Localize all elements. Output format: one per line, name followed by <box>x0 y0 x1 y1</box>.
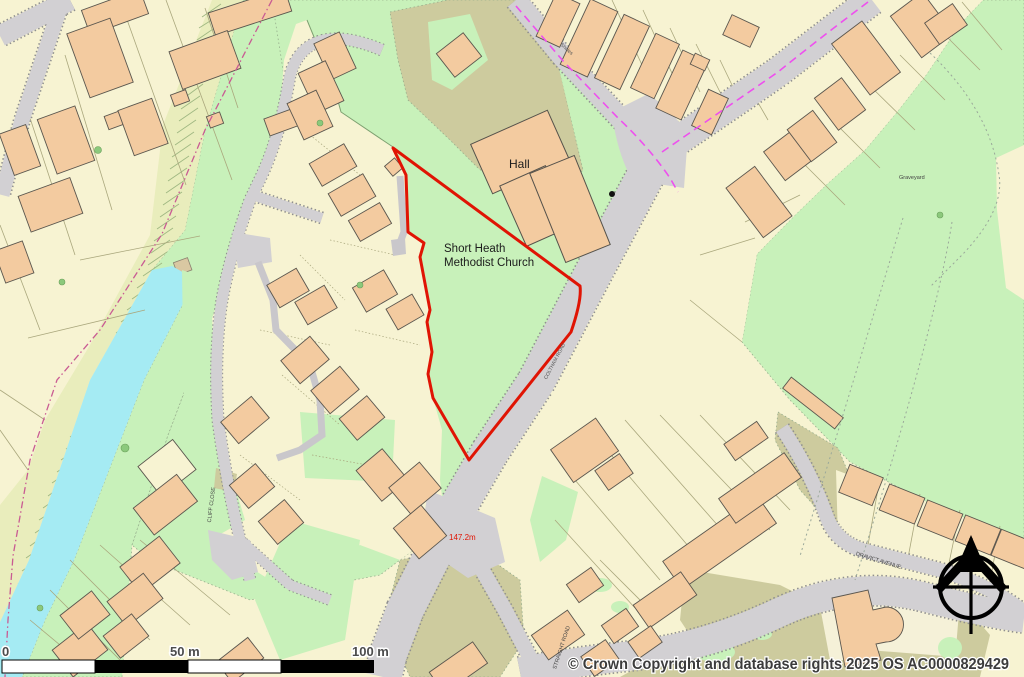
svg-text:100 m: 100 m <box>352 644 389 659</box>
svg-text:0: 0 <box>2 644 9 659</box>
svg-text:Hall: Hall <box>509 157 530 171</box>
svg-text:147.2m: 147.2m <box>449 533 476 542</box>
svg-text:Methodist Church: Methodist Church <box>444 257 534 269</box>
svg-text:50 m: 50 m <box>170 644 200 659</box>
svg-text:Graveyard: Graveyard <box>899 175 925 181</box>
svg-text:Short Heath: Short Heath <box>444 243 505 255</box>
svg-text:© Crown Copyright and database: © Crown Copyright and database rights 20… <box>568 656 1009 673</box>
